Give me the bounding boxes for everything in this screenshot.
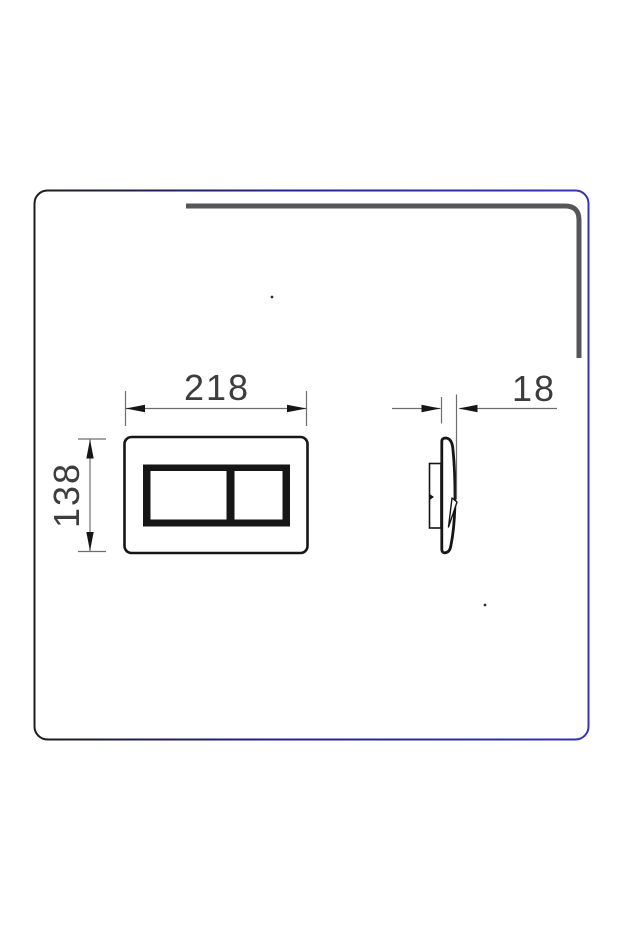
left-flush-button xyxy=(151,471,227,520)
arrowhead-up-icon xyxy=(86,440,93,459)
front-view xyxy=(125,437,308,553)
depth-dim-label: 18 xyxy=(512,368,556,409)
page: 218 138 18 xyxy=(0,0,621,931)
right-flush-button xyxy=(235,471,283,520)
arrowhead-right-icon xyxy=(422,405,441,412)
technical-drawing: 218 138 18 xyxy=(0,0,621,931)
arrowhead-left-icon xyxy=(459,405,478,412)
panel-border xyxy=(35,191,589,740)
side-view xyxy=(429,438,457,553)
shadow-line xyxy=(186,206,579,358)
arrowhead-down-icon xyxy=(86,532,93,551)
width-dimension: 218 xyxy=(126,367,307,426)
width-dim-label: 218 xyxy=(184,367,250,408)
speck-bottom xyxy=(484,604,487,607)
height-dimension: 138 xyxy=(46,439,106,552)
plate-profile xyxy=(442,438,455,553)
height-dim-label: 138 xyxy=(46,462,87,528)
depth-dimension: 18 xyxy=(392,368,557,499)
speck-top xyxy=(271,296,274,299)
arrowhead-left-icon xyxy=(126,405,146,412)
arrowhead-right-icon xyxy=(287,405,307,412)
